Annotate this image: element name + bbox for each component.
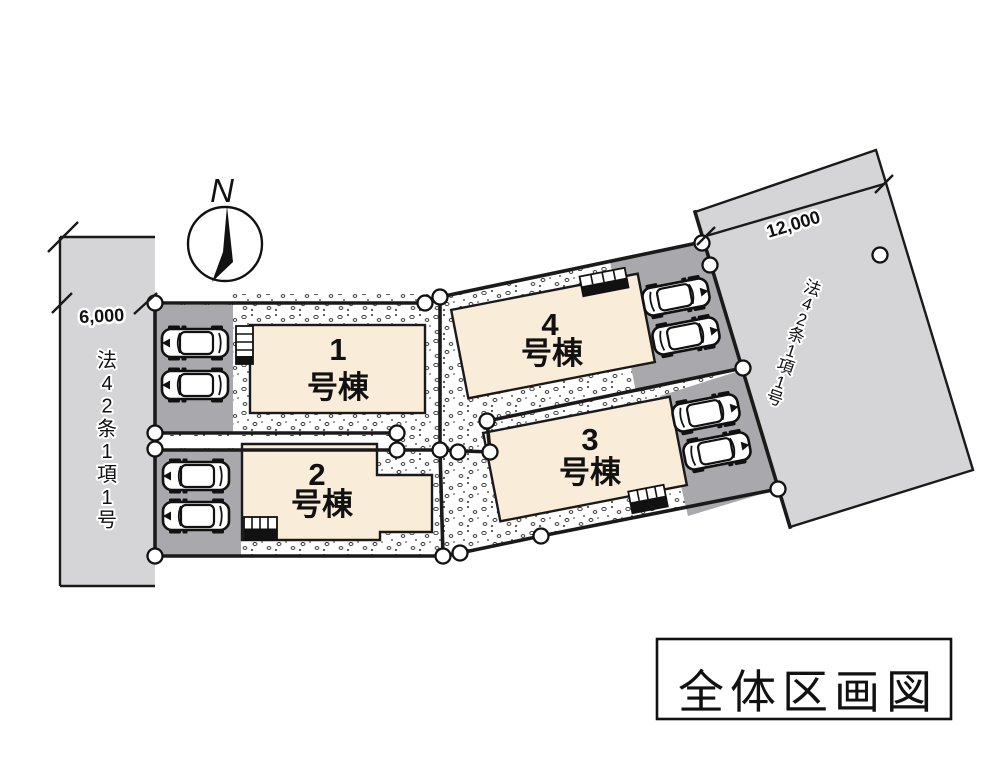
entrance-steps-building-2 [244, 517, 277, 540]
building-1-number: 1 [329, 332, 346, 367]
building-3-number: 3 [581, 422, 598, 457]
north-label: N [210, 172, 234, 209]
car-icon [163, 499, 229, 534]
entrance-steps-building-1 [236, 326, 253, 364]
building-2-suffix: 号棟 [291, 487, 354, 522]
left-road-width: 6,000 [79, 305, 125, 327]
north-compass: N [188, 172, 262, 282]
car-icon [162, 368, 228, 403]
site-plan-canvas: N 6,000 12,000 法42条1項1号 法42条1項1号 1 号棟 2 … [0, 0, 1000, 760]
page-title: 全体区画図 [678, 666, 938, 718]
car-icon [163, 459, 229, 494]
site-plan-svg: N 6,000 12,000 法42条1項1号 法42条1項1号 1 号棟 2 … [0, 0, 1000, 760]
building-3-suffix: 号棟 [559, 455, 622, 490]
title-box: 全体区画図 [657, 639, 951, 719]
building-1-suffix: 号棟 [307, 370, 370, 405]
car-icon [162, 326, 228, 361]
building-4-suffix: 号棟 [521, 336, 584, 371]
